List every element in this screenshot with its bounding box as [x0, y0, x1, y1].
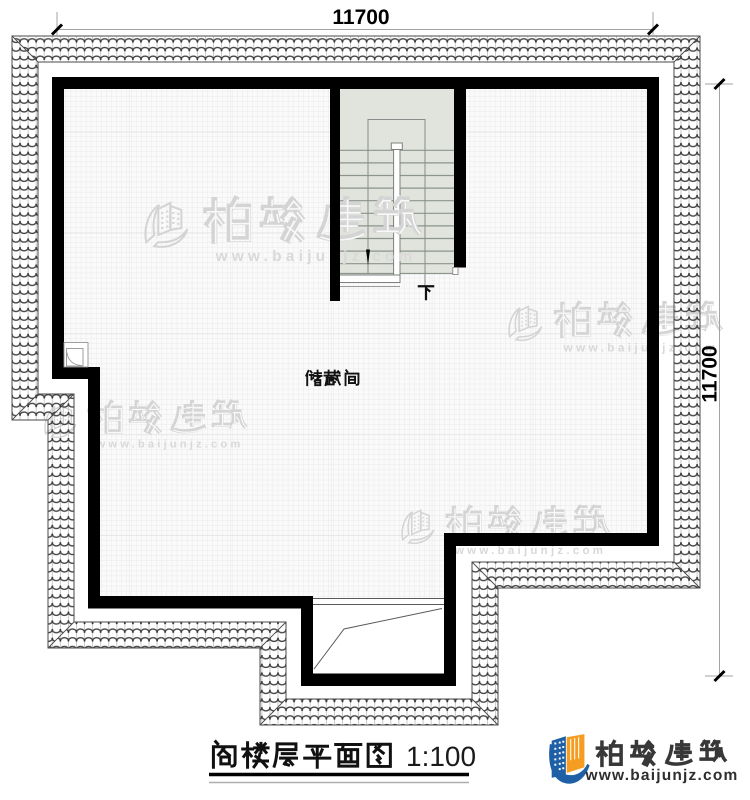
svg-text:11700: 11700: [699, 345, 722, 402]
svg-text:1:100: 1:100: [406, 741, 476, 772]
svg-text:www.baijunjz.com: www.baijunjz.com: [585, 767, 739, 784]
svg-text:11700: 11700: [332, 6, 389, 29]
svg-text:www.baijunjz.com: www.baijunjz.com: [96, 437, 243, 450]
svg-text:www.baijunjz.com: www.baijunjz.com: [215, 247, 416, 264]
